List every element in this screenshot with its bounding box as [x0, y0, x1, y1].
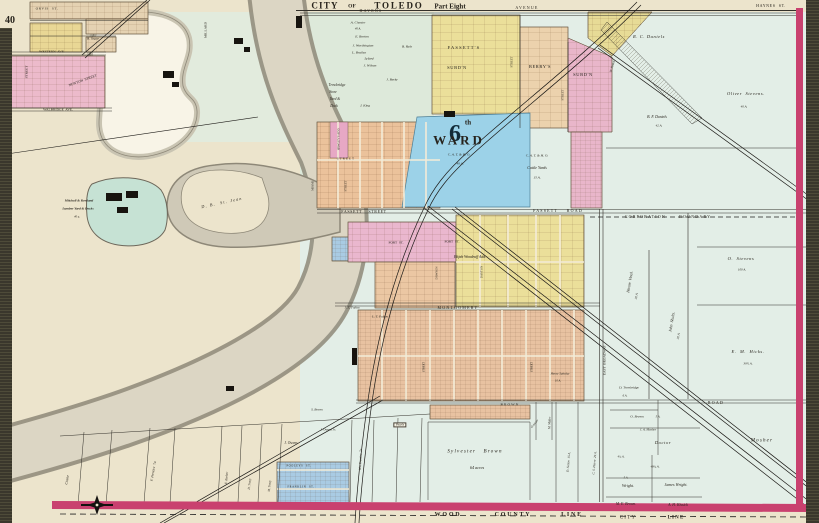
map-sheet: CITYOFTOLEDOPart Eight40HAYNES ST.HAVENS… — [0, 0, 819, 523]
map-graphics — [0, 0, 819, 523]
st-jean-island — [181, 170, 269, 233]
